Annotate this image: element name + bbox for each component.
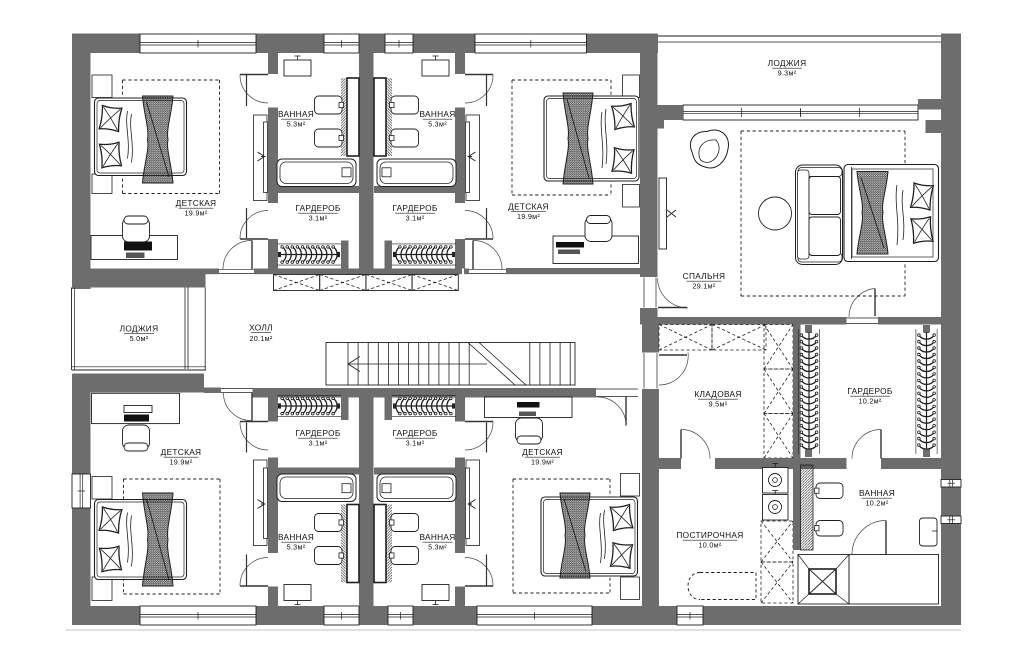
svg-text:СПАЛЬНЯ: СПАЛЬНЯ bbox=[683, 271, 726, 281]
svg-text:ПОСТИРОЧНАЯ: ПОСТИРОЧНАЯ bbox=[676, 530, 743, 540]
svg-text:ВАННАЯ: ВАННАЯ bbox=[419, 532, 455, 542]
svg-text:19.9м²: 19.9м² bbox=[184, 208, 207, 217]
svg-text:20.1м²: 20.1м² bbox=[249, 334, 272, 343]
svg-text:ГАРДЕРОБ: ГАРДЕРОБ bbox=[295, 203, 341, 213]
svg-text:ХОЛЛ: ХОЛЛ bbox=[249, 323, 273, 333]
svg-text:19.9м²: 19.9м² bbox=[531, 457, 554, 466]
svg-text:ДЕТСКАЯ: ДЕТСКАЯ bbox=[161, 447, 202, 457]
svg-text:5.0м²: 5.0м² bbox=[130, 334, 149, 343]
svg-text:9.3м²: 9.3м² bbox=[778, 68, 797, 77]
svg-text:ВАННАЯ: ВАННАЯ bbox=[859, 488, 895, 498]
svg-text:3.1м²: 3.1м² bbox=[406, 438, 425, 447]
svg-text:9.5м²: 9.5м² bbox=[709, 399, 728, 408]
svg-text:5.3м²: 5.3м² bbox=[428, 542, 447, 551]
svg-text:ДЕТСКАЯ: ДЕТСКАЯ bbox=[176, 198, 217, 208]
svg-text:5.3м²: 5.3м² bbox=[287, 119, 306, 128]
svg-text:ДЕТСКАЯ: ДЕТСКАЯ bbox=[522, 447, 563, 457]
svg-text:10.0м²: 10.0м² bbox=[698, 540, 721, 549]
svg-text:10.2м²: 10.2м² bbox=[858, 396, 881, 405]
svg-text:ВАННАЯ: ВАННАЯ bbox=[278, 109, 314, 119]
svg-text:10.2м²: 10.2м² bbox=[865, 498, 888, 507]
svg-text:29.1м²: 29.1м² bbox=[692, 281, 715, 290]
svg-text:ЛОДЖИЯ: ЛОДЖИЯ bbox=[768, 58, 807, 68]
svg-text:3.1м²: 3.1м² bbox=[406, 213, 425, 222]
svg-text:ГАРДЕРОБ: ГАРДЕРОБ bbox=[847, 386, 893, 396]
svg-text:5.3м²: 5.3м² bbox=[287, 542, 306, 551]
svg-text:3.1м²: 3.1м² bbox=[309, 213, 328, 222]
svg-text:ГАРДЕРОБ: ГАРДЕРОБ bbox=[295, 428, 341, 438]
svg-text:ЛОДЖИЯ: ЛОДЖИЯ bbox=[120, 324, 159, 334]
svg-text:ГАРДЕРОБ: ГАРДЕРОБ bbox=[392, 428, 438, 438]
svg-text:КЛАДОВАЯ: КЛАДОВАЯ bbox=[694, 389, 741, 399]
svg-text:19.9м²: 19.9м² bbox=[169, 457, 192, 466]
svg-text:ГАРДЕРОБ: ГАРДЕРОБ bbox=[392, 203, 438, 213]
svg-text:ДЕТСКАЯ: ДЕТСКАЯ bbox=[508, 202, 549, 212]
svg-text:3.1м²: 3.1м² bbox=[309, 438, 328, 447]
svg-text:5.3м²: 5.3м² bbox=[428, 119, 447, 128]
svg-text:19.9м²: 19.9м² bbox=[517, 212, 540, 221]
svg-text:ВАННАЯ: ВАННАЯ bbox=[419, 109, 455, 119]
svg-text:ВАННАЯ: ВАННАЯ bbox=[278, 532, 314, 542]
